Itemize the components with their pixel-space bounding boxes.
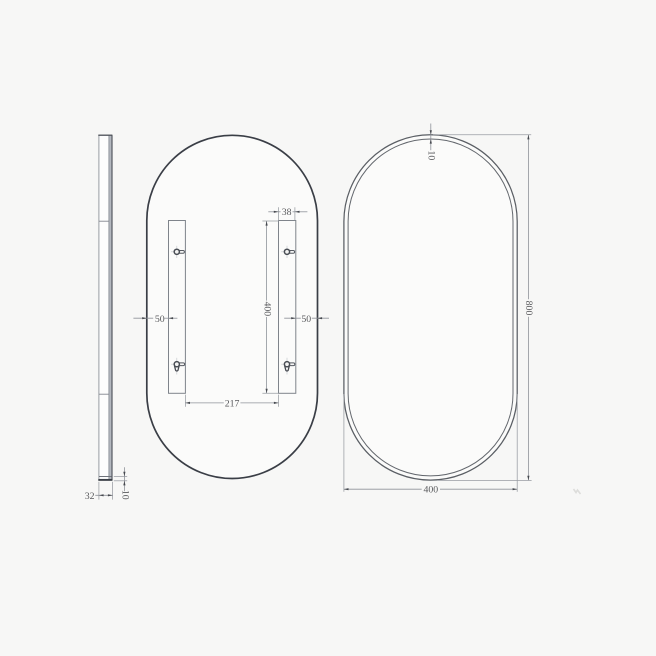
- svg-text:10: 10: [426, 151, 437, 161]
- svg-text:50: 50: [301, 314, 311, 325]
- svg-text:400: 400: [261, 301, 272, 316]
- svg-text:38: 38: [282, 207, 292, 218]
- svg-text:400: 400: [423, 485, 438, 496]
- svg-text:32: 32: [85, 491, 95, 502]
- svg-text:217: 217: [225, 398, 240, 409]
- svg-text:10: 10: [119, 490, 130, 500]
- svg-text:800: 800: [523, 301, 534, 316]
- svg-text:50: 50: [155, 314, 165, 325]
